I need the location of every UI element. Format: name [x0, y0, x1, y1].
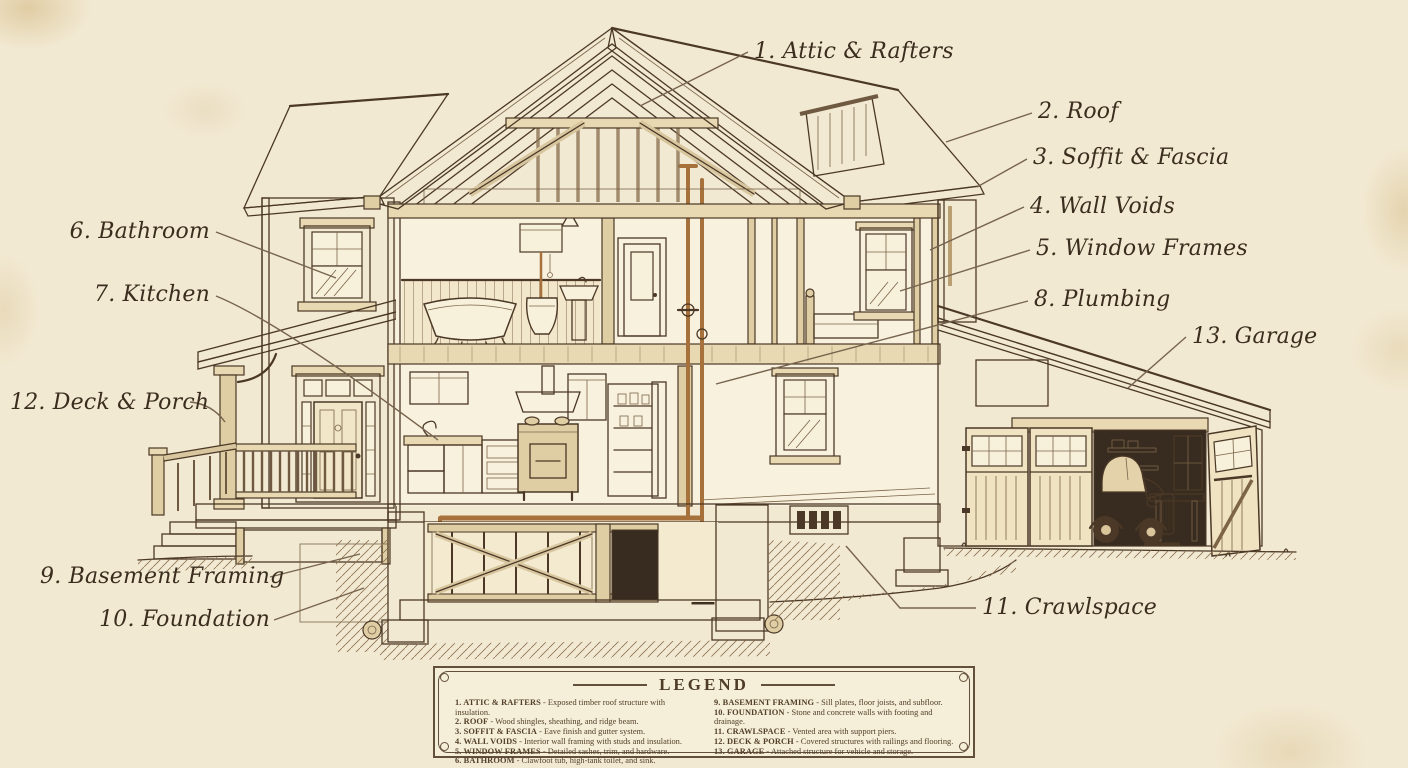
legend-rule-left: [573, 684, 647, 686]
callout-kitchen: 7. Kitchen: [40, 282, 210, 308]
callout-windowframes: 5. Window Frames: [1036, 236, 1248, 262]
legend-item: 6. BATHROOM - Clawfoot tub, high-tank to…: [455, 756, 702, 766]
callout-foundation: 10. Foundation: [60, 607, 270, 633]
basement-opening: [612, 530, 658, 600]
footing-left: [382, 620, 428, 644]
foundation-wall-left: [388, 512, 424, 642]
porch-column: [214, 366, 244, 509]
callout-deckporch: 12. Deck & Porch: [10, 390, 185, 416]
legend-box: LEGEND 1. ATTIC & RAFTERS - Exposed timb…: [433, 666, 975, 758]
legend-item: 5. WINDOW FRAMES - Detailed sashes, trim…: [455, 747, 702, 757]
garage-door-closed-left: [962, 428, 1028, 546]
legend-column-left: 1. ATTIC & RAFTERS - Exposed timber roof…: [455, 698, 702, 766]
drain-pipe: [363, 621, 381, 639]
legend-column-right: 9. BASEMENT FRAMING - Sill plates, floor…: [714, 698, 961, 766]
legend-item: 10. FOUNDATION - Stone and concrete wall…: [714, 708, 961, 727]
callout-garage: 13. Garage: [1192, 324, 1317, 350]
legend-item: 13. GARAGE - Attached structure for vehi…: [714, 747, 961, 757]
porch: [138, 300, 396, 572]
callout-roof: 2. Roof: [1038, 99, 1119, 125]
basement-post: [596, 524, 610, 602]
callout-plumbing: 8. Plumbing: [1034, 287, 1170, 313]
support-pier: [904, 538, 940, 572]
eave-fascia: [244, 196, 384, 216]
callout-crawlspace: 11. Crawlspace: [982, 595, 1157, 621]
callout-bathroom: 6. Bathroom: [40, 219, 210, 245]
bathroom-window: [298, 218, 376, 311]
callout-basement: 9. Basement Framing: [40, 564, 266, 590]
legend-title: LEGEND: [659, 675, 749, 695]
legend-item: 4. WALL VOIDS - Interior wall framing wi…: [455, 737, 702, 747]
vent-panel: [976, 360, 1048, 406]
garage-door-closed-right: [1030, 428, 1092, 546]
legend-rule-right: [761, 684, 835, 686]
garage-door-open: [1208, 426, 1260, 556]
legend-item: 11. CRAWLSPACE - Vented area with suppor…: [714, 727, 961, 737]
earth-hatch: [336, 540, 388, 652]
footing-right: [712, 618, 764, 640]
legend-item: 12. DECK & PORCH - Covered structures wi…: [714, 737, 961, 747]
leader-roof: [946, 113, 1032, 142]
parchment-page: 1. Attic & Rafters 2. Roof 3. Soffit & F…: [0, 0, 1408, 768]
callout-soffit: 3. Soffit & Fascia: [1033, 145, 1229, 171]
dormer-vent: [800, 96, 884, 176]
legend-item: 9. BASEMENT FRAMING - Sill plates, floor…: [714, 698, 961, 708]
callout-wallvoids: 4. Wall Voids: [1030, 194, 1175, 220]
callout-attic: 1. Attic & Rafters: [754, 39, 954, 65]
legend-item: 2. ROOF - Wood shingles, sheathing, and …: [455, 717, 702, 727]
partition-wall: [602, 218, 614, 344]
legend-item: 3. SOFFIT & FASCIA - Eave finish and gut…: [455, 727, 702, 737]
right-exterior: [938, 200, 976, 322]
attic-rafters: [414, 56, 810, 206]
leader-soffit: [977, 159, 1027, 187]
house-cross-section-illustration: [0, 0, 1408, 768]
legend-item: 1. ATTIC & RAFTERS - Exposed timber roof…: [455, 698, 702, 717]
collar-tie: [506, 118, 718, 128]
